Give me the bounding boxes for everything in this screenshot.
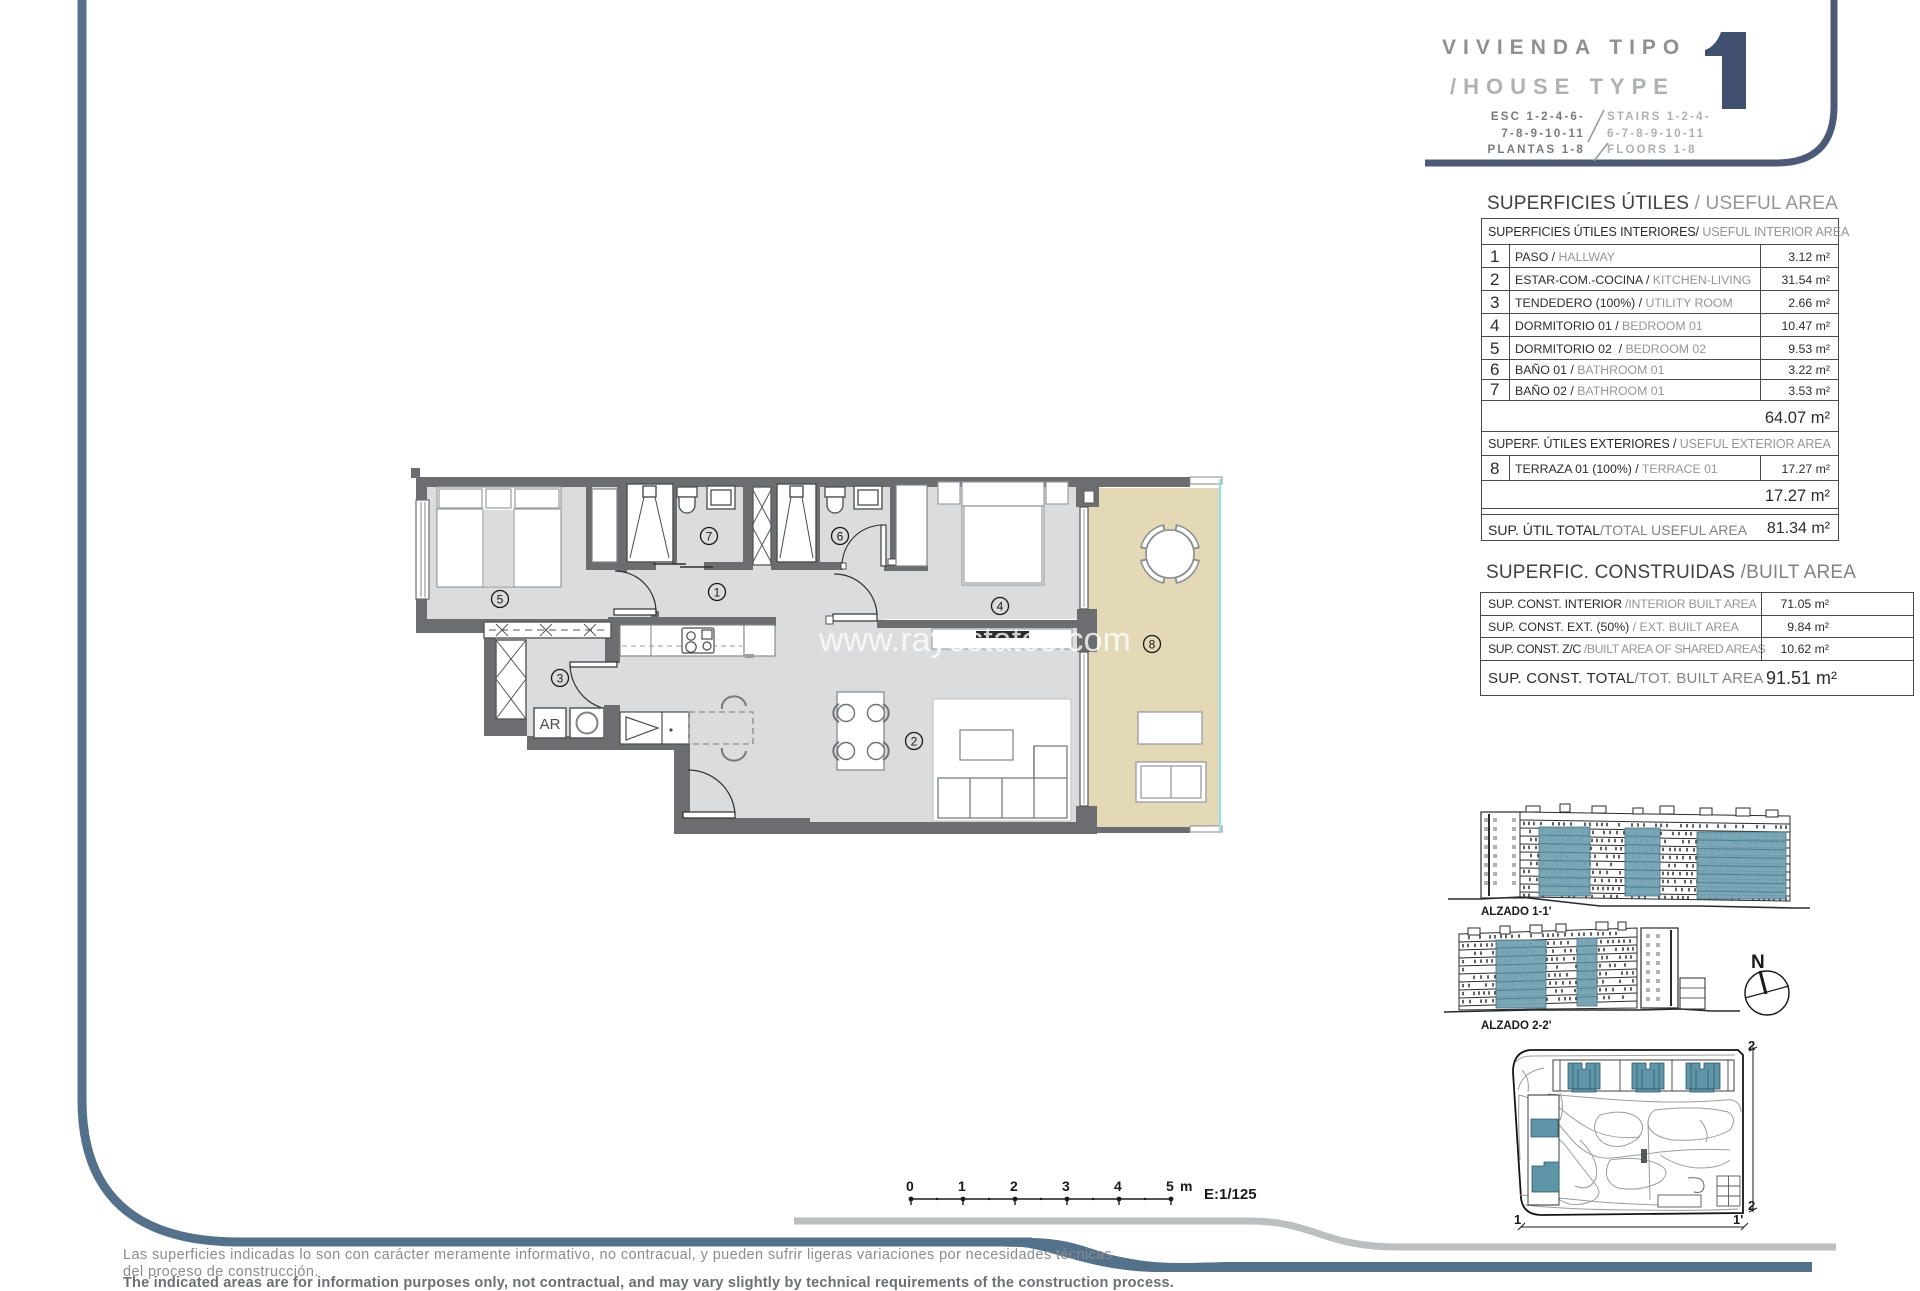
svg-text:2: 2 bbox=[911, 735, 918, 749]
svg-text:6: 6 bbox=[837, 530, 844, 544]
svg-text:1: 1 bbox=[1514, 1212, 1521, 1227]
svg-text:2: 2 bbox=[1748, 1038, 1755, 1053]
svg-text:3: 3 bbox=[557, 672, 564, 686]
svg-text:2: 2 bbox=[1748, 1198, 1755, 1213]
svg-text:www.rayestates.com: www.rayestates.com bbox=[818, 621, 1131, 659]
svg-text:1': 1' bbox=[1733, 1212, 1743, 1227]
svg-text:8: 8 bbox=[1149, 638, 1156, 652]
svg-text:7: 7 bbox=[706, 530, 713, 544]
svg-text:AR: AR bbox=[540, 716, 561, 733]
svg-text:5: 5 bbox=[497, 593, 504, 607]
svg-text:4: 4 bbox=[997, 600, 1004, 614]
svg-text:1: 1 bbox=[714, 586, 721, 600]
svg-text:N: N bbox=[1751, 952, 1765, 973]
